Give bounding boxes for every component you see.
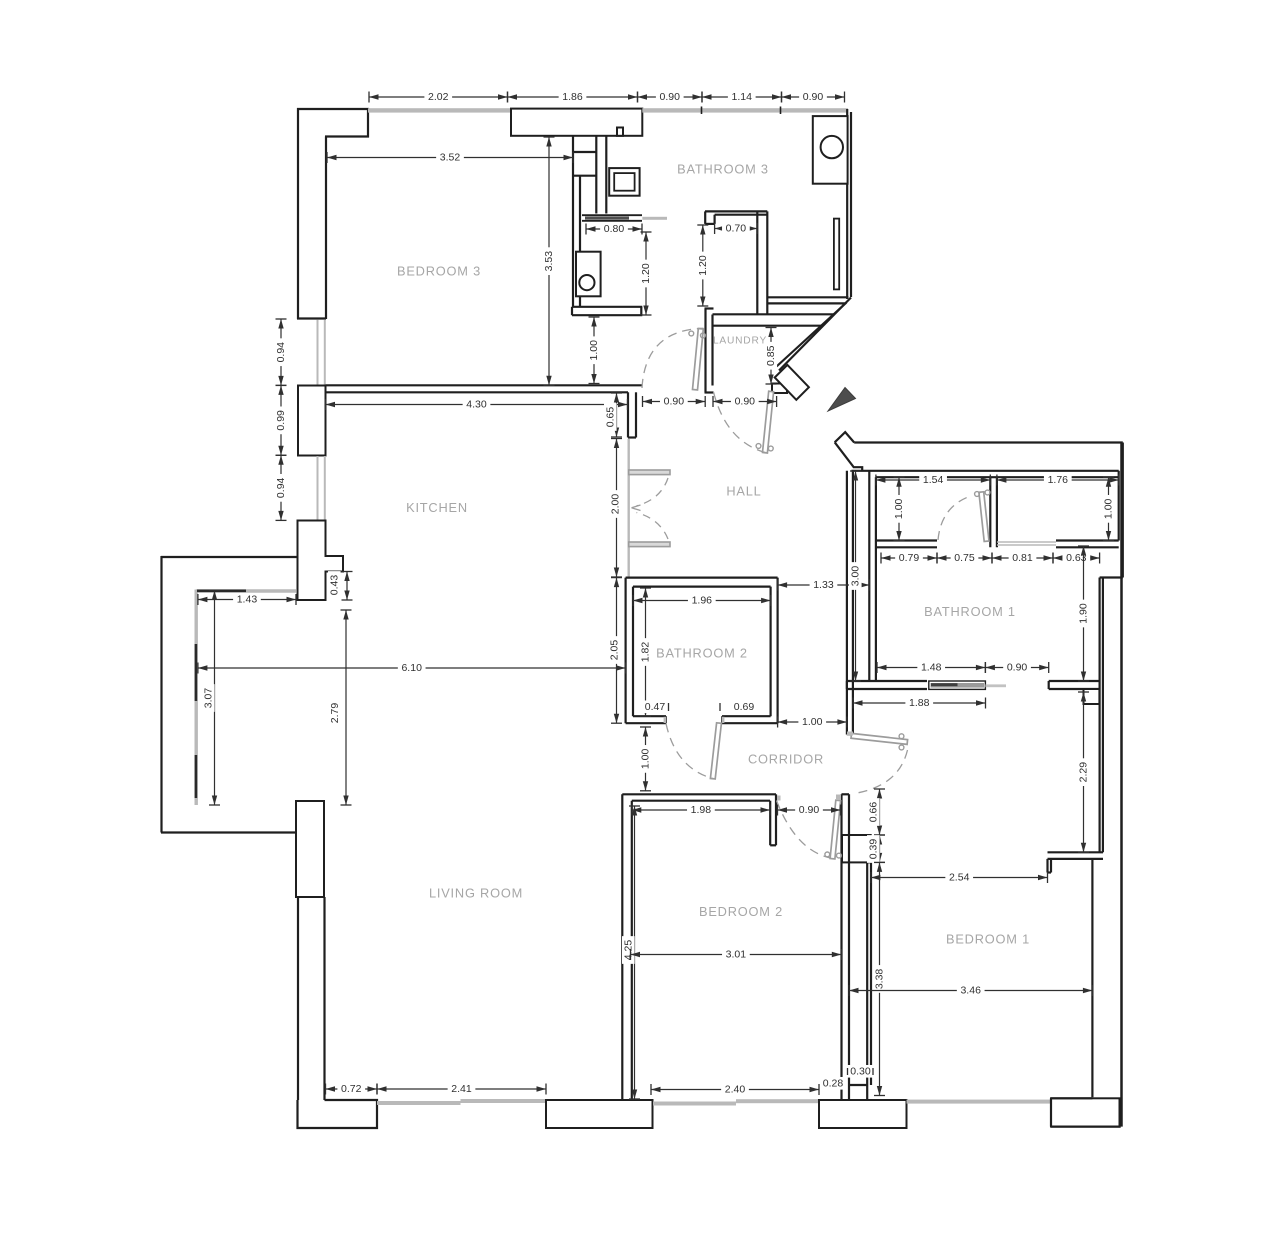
svg-text:1.00: 1.00 [802, 716, 823, 728]
svg-text:2.00: 2.00 [610, 494, 622, 515]
svg-text:1.00: 1.00 [893, 498, 905, 519]
svg-text:4.30: 4.30 [466, 399, 487, 411]
svg-text:1.76: 1.76 [1048, 474, 1069, 486]
svg-text:0.39: 0.39 [868, 839, 880, 860]
svg-text:0.43: 0.43 [329, 575, 341, 596]
svg-text:0.66: 0.66 [868, 802, 880, 823]
svg-text:0.79: 0.79 [899, 552, 920, 564]
svg-text:HALL: HALL [726, 484, 761, 499]
svg-text:1.54: 1.54 [923, 474, 944, 486]
svg-text:2.54: 2.54 [949, 872, 970, 884]
svg-text:BATHROOM 3: BATHROOM 3 [677, 162, 769, 177]
svg-text:CORRIDOR: CORRIDOR [748, 752, 824, 767]
svg-text:0.94: 0.94 [275, 342, 287, 363]
svg-text:1.33: 1.33 [813, 579, 834, 591]
svg-text:BEDROOM 2: BEDROOM 2 [699, 904, 783, 919]
svg-text:1.20: 1.20 [697, 255, 709, 276]
svg-text:LIVING ROOM: LIVING ROOM [429, 886, 523, 901]
svg-text:2.02: 2.02 [428, 91, 449, 103]
svg-text:0.28: 0.28 [823, 1078, 844, 1090]
svg-text:0.99: 0.99 [275, 410, 287, 431]
svg-text:1.86: 1.86 [562, 91, 583, 103]
svg-text:3.01: 3.01 [726, 949, 747, 961]
svg-text:0.90: 0.90 [735, 396, 756, 408]
svg-text:0.47: 0.47 [645, 701, 666, 713]
svg-text:1.00: 1.00 [1103, 498, 1115, 519]
svg-text:BEDROOM 1: BEDROOM 1 [946, 932, 1030, 947]
svg-text:3.07: 3.07 [203, 688, 215, 709]
svg-text:LAUNDRY: LAUNDRY [713, 336, 767, 347]
svg-text:1.98: 1.98 [691, 804, 712, 816]
svg-text:0.90: 0.90 [803, 91, 824, 103]
svg-text:0.72: 0.72 [341, 1083, 362, 1095]
svg-text:0.90: 0.90 [1007, 662, 1028, 674]
svg-text:KITCHEN: KITCHEN [406, 500, 468, 515]
svg-text:0.85: 0.85 [765, 345, 777, 366]
svg-text:3.46: 3.46 [960, 985, 981, 997]
svg-text:3.53: 3.53 [543, 251, 555, 272]
svg-text:1.20: 1.20 [640, 263, 652, 284]
svg-text:6.10: 6.10 [401, 662, 422, 674]
svg-text:1.00: 1.00 [588, 340, 600, 361]
svg-text:0.30: 0.30 [850, 1066, 871, 1078]
svg-text:1.96: 1.96 [692, 595, 713, 607]
svg-text:1.82: 1.82 [640, 642, 652, 663]
svg-text:0.69: 0.69 [734, 701, 755, 713]
svg-text:1.43: 1.43 [237, 594, 258, 606]
svg-text:0.81: 0.81 [1012, 552, 1033, 564]
svg-text:0.90: 0.90 [799, 804, 820, 816]
svg-text:3.38: 3.38 [874, 969, 886, 990]
svg-text:0.94: 0.94 [275, 477, 287, 498]
svg-text:0.80: 0.80 [604, 223, 625, 235]
svg-text:2.29: 2.29 [1078, 762, 1090, 783]
svg-text:1.48: 1.48 [921, 662, 942, 674]
svg-text:3.00: 3.00 [850, 566, 862, 587]
svg-text:2.05: 2.05 [609, 640, 621, 661]
svg-text:3.52: 3.52 [440, 152, 461, 164]
svg-text:1.88: 1.88 [909, 697, 930, 709]
svg-text:BEDROOM 3: BEDROOM 3 [397, 264, 481, 279]
svg-text:2.41: 2.41 [451, 1083, 472, 1095]
svg-text:2.79: 2.79 [329, 703, 341, 724]
svg-text:1.14: 1.14 [732, 91, 753, 103]
svg-text:0.90: 0.90 [664, 396, 685, 408]
svg-text:0.70: 0.70 [726, 223, 747, 235]
svg-text:1.90: 1.90 [1078, 603, 1090, 624]
svg-text:BATHROOM 2: BATHROOM 2 [656, 646, 748, 661]
svg-text:0.75: 0.75 [954, 552, 975, 564]
svg-text:0.90: 0.90 [660, 91, 681, 103]
svg-text:0.65: 0.65 [605, 407, 617, 428]
svg-text:2.40: 2.40 [725, 1084, 746, 1096]
svg-text:4.25: 4.25 [623, 940, 635, 961]
svg-text:1.00: 1.00 [640, 749, 652, 770]
svg-text:BATHROOM 1: BATHROOM 1 [924, 604, 1016, 619]
